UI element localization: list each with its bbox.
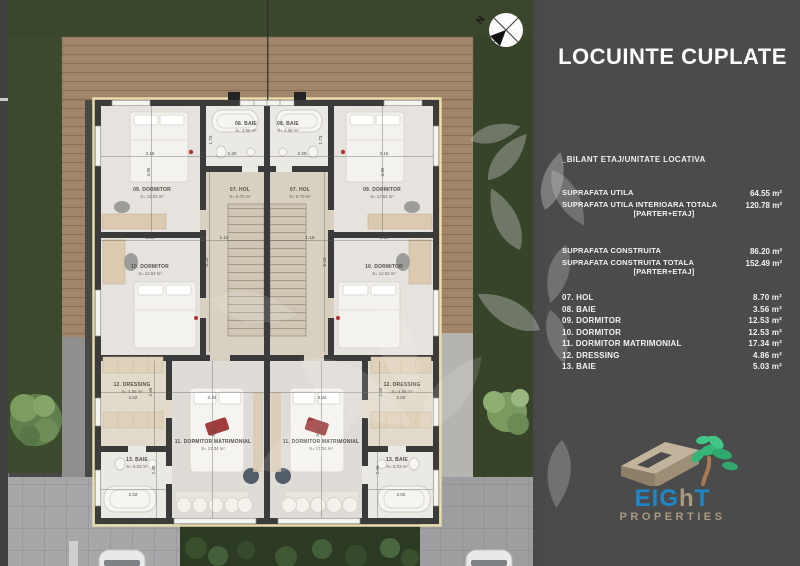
svg-text:2.49: 2.49: [375, 465, 380, 474]
svg-text:07. HOL: 07. HOL: [290, 187, 310, 193]
tree: [10, 394, 62, 446]
svg-text:10. DORMITOR: 10. DORMITOR: [131, 264, 169, 270]
svg-text:S= 12.53 m²: S= 12.53 m²: [372, 271, 396, 276]
room-label: 08. BAIE: [562, 305, 596, 317]
boundary-post: [267, 0, 268, 100]
company-logo: EIGhT PROPERTIES: [545, 436, 800, 523]
room-value: 3.56 m²: [753, 305, 782, 317]
room-label: 12. DRESSING: [562, 351, 620, 363]
section-heading: _BILANT ETAJ/UNITATE LOCATIVA: [562, 155, 706, 164]
svg-text:5.19: 5.19: [211, 427, 216, 436]
brochure-page: 3.16 15 2.20 2.20 3.16 3.16 25 1.16 1.16…: [0, 0, 800, 566]
room-value: 17.34 m²: [748, 339, 782, 351]
svg-text:2.55: 2.55: [148, 387, 153, 396]
logo-tree-leaves: [689, 436, 738, 471]
svg-text:2.20: 2.20: [228, 151, 237, 156]
room-value: 4.86 m²: [753, 351, 782, 363]
summary-row: SUPRAFATA CONSTRUITA 86.20 m²: [562, 247, 782, 256]
svg-text:2.02: 2.02: [397, 492, 406, 497]
svg-text:13. BAIE: 13. BAIE: [126, 457, 148, 463]
svg-text:2.49: 2.49: [151, 465, 156, 474]
logo-tree-trunk: [703, 458, 709, 484]
svg-text:S= 12.53 m²: S= 12.53 m²: [140, 194, 164, 199]
room-label: 11. DORMITOR MATRIMONIAL: [562, 339, 682, 351]
room-label: 07. HOL: [562, 293, 594, 305]
logo-subtext: PROPERTIES: [545, 511, 800, 523]
svg-text:3.95: 3.95: [380, 167, 385, 176]
svg-text:1.73: 1.73: [318, 135, 323, 144]
hedge: [180, 526, 420, 566]
svg-text:3.34: 3.34: [208, 395, 217, 400]
svg-text:09. DORMITOR: 09. DORMITOR: [363, 187, 401, 193]
svg-text:S= 12.53 m²: S= 12.53 m²: [370, 194, 394, 199]
svg-text:3.16: 3.16: [380, 235, 389, 240]
info-panel: LOCUINTE CUPLATE _BILANT ETAJ/UNITATE LO…: [545, 0, 800, 566]
svg-text:13. BAIE: 13. BAIE: [386, 457, 408, 463]
room-row: 08. BAIE 3.56 m²: [562, 305, 782, 317]
summary-value: 64.55 m²: [750, 189, 782, 198]
car: [466, 550, 512, 566]
logo-wordmark: EIGhT: [545, 489, 800, 509]
summary-value: 152.49 m²: [746, 259, 782, 268]
svg-text:08. BAIE: 08. BAIE: [277, 121, 299, 127]
svg-text:07. HOL: 07. HOL: [230, 187, 250, 193]
room-row: 13. BAIE 5.03 m²: [562, 362, 782, 374]
svg-text:12. DRESSING: 12. DRESSING: [114, 382, 151, 388]
room-label: 13. BAIE: [562, 362, 596, 374]
svg-text:S= 17.34 m²: S= 17.34 m²: [201, 446, 225, 451]
room-label: 10. DORMITOR: [562, 328, 621, 340]
room-row: 11. DORMITOR MATRIMONIAL 17.34 m²: [562, 339, 782, 351]
svg-text:2.02: 2.02: [129, 492, 138, 497]
summary-sublabel: [PARTER+ETAJ]: [562, 210, 720, 219]
svg-text:25: 25: [199, 235, 205, 240]
summary-label: SUPRAFATA CONSTRUITA TOTALA: [562, 258, 694, 267]
svg-text:1.73: 1.73: [208, 135, 213, 144]
room-row: 07. HOL 8.70 m²: [562, 293, 782, 305]
svg-text:3.95: 3.95: [146, 167, 151, 176]
svg-text:09. DORMITOR: 09. DORMITOR: [133, 187, 171, 193]
summary-label: SUPRAFATA UTILA: [562, 189, 720, 198]
room-value: 12.53 m²: [748, 316, 782, 328]
svg-text:3.16: 3.16: [380, 151, 389, 156]
svg-text:15: 15: [199, 151, 205, 156]
side-wall-strip: [62, 337, 85, 477]
room-row: 12. DRESSING 4.86 m²: [562, 351, 782, 363]
summary-row: SUPRAFATA UTILA INTERIOARA TOTALA[PARTER…: [562, 201, 782, 218]
room-value: 5.03 m²: [753, 362, 782, 374]
svg-text:6.20: 6.20: [204, 257, 209, 266]
room-label: 09. DORMITOR: [562, 316, 621, 328]
svg-text:S= 5.03 m²: S= 5.03 m²: [386, 464, 408, 469]
svg-text:S= 5.03 m²: S= 5.03 m²: [126, 464, 148, 469]
svg-text:3.16: 3.16: [146, 235, 155, 240]
svg-text:2.20: 2.20: [298, 151, 307, 156]
summary-row: SUPRAFATA CONSTRUITA TOTALA[PARTER+ETAJ]…: [562, 259, 782, 276]
svg-text:11. DORMITOR MATRIMONIAL: 11. DORMITOR MATRIMONIAL: [175, 439, 252, 445]
room-value: 12.53 m²: [748, 328, 782, 340]
room-value: 8.70 m²: [753, 293, 782, 305]
summary-value: 120.78 m²: [746, 201, 782, 210]
summary-label: SUPRAFATA CONSTRUITA: [562, 247, 720, 256]
summary-label: SUPRAFATA UTILA INTERIOARA TOTALA: [562, 200, 717, 209]
car: [99, 550, 145, 566]
svg-text:S= 3.56 m²: S= 3.56 m²: [277, 128, 299, 133]
svg-text:10. DORMITOR: 10. DORMITOR: [365, 264, 403, 270]
svg-text:08. BAIE: 08. BAIE: [235, 121, 257, 127]
logo-building-icon: [603, 436, 743, 486]
room-row: 09. DORMITOR 12.53 m²: [562, 316, 782, 328]
svg-text:S= 12.53 m²: S= 12.53 m²: [138, 271, 162, 276]
area-summary: SUPRAFATA UTILA 64.55 m² SUPRAFATA UTILA…: [562, 189, 782, 279]
svg-text:1.16: 1.16: [220, 235, 229, 240]
svg-text:S= 4.86 m²: S= 4.86 m²: [121, 389, 143, 394]
svg-text:2.02: 2.02: [129, 395, 138, 400]
summary-row: SUPRAFATA UTILA 64.55 m²: [562, 189, 782, 198]
svg-text:6.20: 6.20: [322, 257, 327, 266]
room-area-list: 07. HOL 8.70 m² 08. BAIE 3.56 m² 09. DOR…: [562, 293, 782, 374]
room-row: 10. DORMITOR 12.53 m²: [562, 328, 782, 340]
page-title: LOCUINTE CUPLATE: [545, 44, 800, 70]
svg-text:S= 8.70 m²: S= 8.70 m²: [289, 194, 311, 199]
svg-text:2.02: 2.02: [397, 395, 406, 400]
svg-text:3.16: 3.16: [146, 151, 155, 156]
svg-text:S= 8.70 m²: S= 8.70 m²: [229, 194, 251, 199]
summary-value: 86.20 m²: [750, 247, 782, 256]
svg-text:S= 3.56 m²: S= 3.56 m²: [235, 128, 257, 133]
svg-text:1.16: 1.16: [306, 235, 315, 240]
summary-sublabel: [PARTER+ETAJ]: [562, 268, 720, 277]
